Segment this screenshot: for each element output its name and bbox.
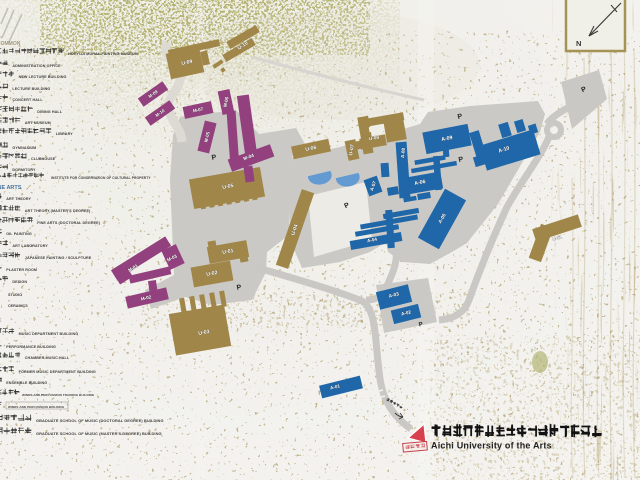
svg-text:GRADUATE SCHOOL OF MUSIC (DOCT: GRADUATE SCHOOL OF MUSIC (DOCTORAL DEGRE… xyxy=(36,418,164,423)
svg-text:GRADUATE SCHOOL OF MUSIC (MAST: GRADUATE SCHOOL OF MUSIC (MASTER'S DEGRE… xyxy=(36,431,162,436)
svg-text:LIBRARY: LIBRARY xyxy=(56,132,73,136)
svg-text:PERFORMANCE BUILDING: PERFORMANCE BUILDING xyxy=(6,345,56,349)
svg-text:WINDS AND PERCUSSION TRAINING: WINDS AND PERCUSSION TRAINING BUILDING xyxy=(22,393,95,397)
svg-text:CERAMICS: CERAMICS xyxy=(8,304,28,308)
svg-text:FORMER MUSIC DEPARTMENT BUILDI: FORMER MUSIC DEPARTMENT BUILDING xyxy=(19,370,96,374)
svg-text:ART THEORY (MASTER'S DEGREE): ART THEORY (MASTER'S DEGREE) xyxy=(25,209,91,213)
svg-text:ART MUSEUM: ART MUSEUM xyxy=(25,121,51,125)
svg-text:NEW LECTURE BUILDING: NEW LECTURE BUILDING xyxy=(19,75,67,79)
svg-text:COMMON: COMMON xyxy=(0,41,21,47)
svg-text:DORMITORY: DORMITORY xyxy=(12,168,36,172)
svg-text:NE ARTS: NE ARTS xyxy=(0,185,22,191)
svg-text:INSTITUTE FOR CONSERVATION OF: INSTITUTE FOR CONSERVATION OF CULTURAL P… xyxy=(51,176,151,180)
svg-text:Aichi University of the Arts: Aichi University of the Arts xyxy=(431,441,552,451)
svg-text:CLUBHOUSE: CLUBHOUSE xyxy=(31,157,56,161)
svg-text:ADMINISTRATION OFFICE: ADMINISTRATION OFFICE xyxy=(12,64,61,68)
svg-text:GYMNASIUM: GYMNASIUM xyxy=(12,146,36,150)
svg-text:STUDIO: STUDIO xyxy=(8,293,22,297)
svg-text:LECTURE BUILDING: LECTURE BUILDING xyxy=(12,87,50,91)
svg-text:A-08: A-08 xyxy=(400,147,406,158)
svg-text:PLASTER ROOM: PLASTER ROOM xyxy=(6,268,37,272)
svg-text:DINING HALL: DINING HALL xyxy=(37,110,63,114)
svg-text:ART THEORY: ART THEORY xyxy=(6,197,31,201)
svg-text:ENSEMBLE BUILDING: ENSEMBLE BUILDING xyxy=(6,381,47,385)
svg-text:DESIGN: DESIGN xyxy=(12,280,27,284)
svg-text:N: N xyxy=(576,39,581,48)
svg-text:MUSIC DEPARTMENT BUILDING: MUSIC DEPARTMENT BUILDING xyxy=(19,332,79,336)
svg-text:HORYUJI MURAL-PAINTING MUSEUM: HORYUJI MURAL-PAINTING MUSEUM xyxy=(68,52,137,56)
svg-text:FINE ARTS (DOCTORAL DEGREE): FINE ARTS (DOCTORAL DEGREE) xyxy=(37,221,101,225)
svg-text:OIL PAINTING: OIL PAINTING xyxy=(6,232,32,236)
svg-text:CHAMBER MUSIC HALL: CHAMBER MUSIC HALL xyxy=(25,356,70,360)
svg-text:C: C xyxy=(0,318,1,324)
svg-text:WINDS AND PERCUSSION BUILDI: WINDS AND PERCUSSION BUILDING xyxy=(8,405,65,409)
svg-text:JAPANESE PAINTING / SCULPTURE: JAPANESE PAINTING / SCULPTURE xyxy=(25,256,92,260)
svg-text:ART LABORATORY: ART LABORATORY xyxy=(12,244,48,248)
svg-text:CONCERT HALL: CONCERT HALL xyxy=(12,98,43,102)
